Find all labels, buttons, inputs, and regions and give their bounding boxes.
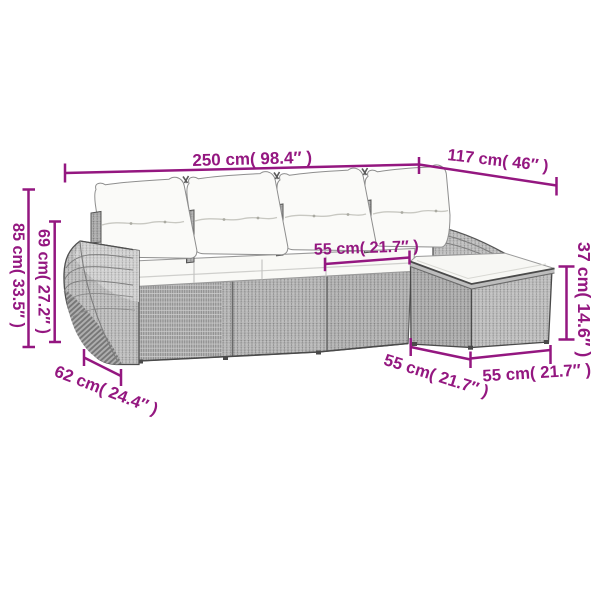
svg-text:55 cm( 21.7″ ): 55 cm( 21.7″ ) bbox=[314, 237, 420, 259]
svg-text:55 cm( 21.7″ ): 55 cm( 21.7″ ) bbox=[482, 360, 592, 386]
svg-text:69 cm( 27.2″ ): 69 cm( 27.2″ ) bbox=[35, 229, 53, 334]
svg-text:37 cm( 14.6″ ): 37 cm( 14.6″ ) bbox=[574, 242, 594, 357]
svg-text:250 cm( 98.4″ ): 250 cm( 98.4″ ) bbox=[192, 148, 312, 170]
svg-text:62 cm( 24.4″ ): 62 cm( 24.4″ ) bbox=[52, 362, 161, 419]
svg-text:85 cm( 33.5″ ): 85 cm( 33.5″ ) bbox=[9, 223, 27, 328]
